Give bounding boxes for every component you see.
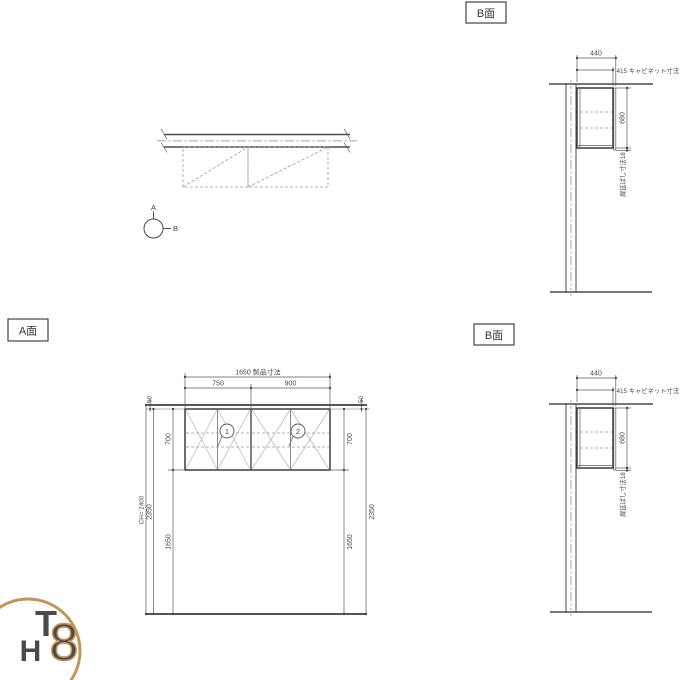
door-section <box>614 88 616 150</box>
dim-gap-right: 50 <box>358 395 365 403</box>
logo-digit-8: 8 <box>50 614 79 672</box>
dim-cabinet-height-right: 700 <box>347 433 354 445</box>
dim-door-extension: 扉延ばし寸法18 <box>618 472 627 517</box>
drawing-page: A B B面 A面 B面 440 <box>0 0 680 680</box>
cabinet-drawing: A B B面 A面 B面 440 <box>0 0 680 680</box>
plan-view: A B <box>144 129 357 238</box>
dim-depth-cabinet: 415 キャビネット寸法 <box>617 386 680 395</box>
b-side-view-top: 440 415 キャビネット寸法 680 扉延ばし寸法18 <box>549 51 679 297</box>
dim-bottom-to-floor-left: 1650 <box>166 534 173 550</box>
direction-marker-circle <box>144 219 163 238</box>
view-label-b-bottom-text: B面 <box>485 330 503 342</box>
dim-height: 680 <box>620 432 627 444</box>
view-label-b-bottom: B面 <box>474 324 514 345</box>
dim-right-unit-width: 900 <box>285 381 297 388</box>
logo: T H 8 <box>0 599 80 680</box>
cabinet-section <box>577 88 613 148</box>
dim-cabinet-height-left: 700 <box>166 433 173 445</box>
b-side-view-bottom: 440 415 キャビネット寸法 680 扉延ばし寸法18 <box>549 371 679 617</box>
dim-gap-left: 50 <box>147 395 154 403</box>
direction-a-label: A <box>151 203 156 212</box>
dim-top-to-floor-right: 2350 <box>369 504 376 520</box>
view-label-a-text: A面 <box>19 326 37 338</box>
view-label-b-top-text: B面 <box>477 8 495 20</box>
a-face-elevation: 1 2 1650 製品寸法 750 900 50 50 CH= 2400 <box>139 368 377 616</box>
dim-depth-cabinet: 415 キャビネット寸法 <box>617 66 680 75</box>
unit2-number: 2 <box>296 427 300 436</box>
dim-left-unit-width: 750 <box>212 381 224 388</box>
dim-ceiling-height: CH= 2400 <box>139 495 146 524</box>
logo-letter-h: H <box>20 635 42 668</box>
dim-height: 680 <box>620 112 627 124</box>
dim-depth-total: 440 <box>590 371 602 378</box>
dim-door-extension: 扉延ばし寸法18 <box>618 152 627 197</box>
direction-b-label: B <box>173 224 178 233</box>
view-label-b-top: B面 <box>466 2 506 23</box>
cabinet-section <box>577 408 613 468</box>
door-section <box>614 408 616 470</box>
dim-bottom-to-floor-right: 1650 <box>347 534 354 550</box>
dim-product-width: 1650 製品寸法 <box>235 368 281 377</box>
direction-marker: A B <box>144 203 178 238</box>
unit1-number: 1 <box>225 427 229 436</box>
plan-cabinet-right-diagonal <box>248 147 328 187</box>
plan-cabinet-left-diagonal <box>183 147 248 187</box>
dim-depth-total: 440 <box>590 51 602 58</box>
view-label-a: A面 <box>8 319 48 341</box>
dim-top-to-floor-left: 2350 <box>147 504 154 520</box>
